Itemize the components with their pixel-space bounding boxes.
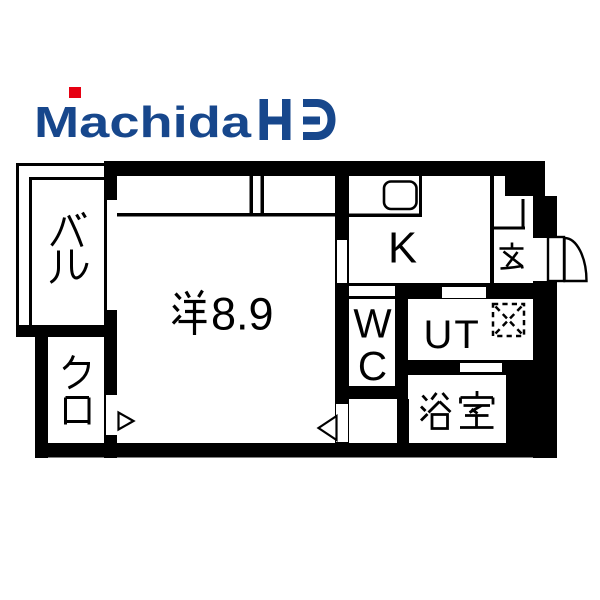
svg-text:8.9: 8.9 bbox=[211, 289, 274, 340]
svg-text:C: C bbox=[358, 343, 387, 389]
svg-text:Machida: Machida bbox=[34, 98, 252, 147]
svg-text:UT: UT bbox=[424, 313, 481, 357]
svg-text:K: K bbox=[388, 224, 417, 272]
svg-text:W: W bbox=[353, 301, 392, 347]
